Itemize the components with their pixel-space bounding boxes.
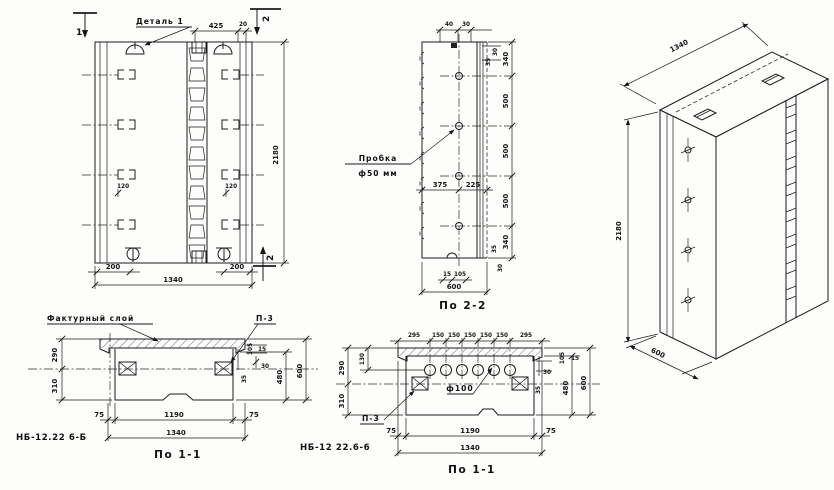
dim-150-a: 150	[432, 333, 444, 339]
hole-diameter-label: ф100	[446, 384, 473, 393]
dim-35-right: 35	[242, 375, 248, 383]
dim-30-right-2: 30	[543, 370, 551, 376]
dim-150-b: 150	[448, 333, 460, 339]
dim-chain-500b: 500	[502, 144, 510, 159]
dim-75-right: 75	[249, 411, 259, 419]
section-2-2-view: Пробка ф50 мм 40 30 30 35 375 225 340 50…	[345, 22, 516, 312]
dim-chain-500c: 500	[502, 194, 510, 209]
dim-75-left: 75	[94, 411, 104, 419]
dim-375: 375	[433, 181, 448, 189]
dim-1340-s11r: 1340	[460, 444, 480, 452]
dim-120-left: 120	[117, 184, 129, 190]
dim-30-side-top: 30	[493, 48, 499, 56]
engineering-drawing-sheet: 120 120 1 2 2 Деталь 1	[0, 0, 834, 490]
dim-310-left-2: 310	[338, 394, 346, 409]
anchor-loop-left-2	[412, 377, 428, 390]
dim-150-e: 150	[496, 333, 508, 339]
plug-label-line2: ф50 мм	[358, 169, 397, 178]
section-1-1-right-view: 295 150 150 150 150 150 295 290 310 130 …	[300, 333, 600, 476]
anchor-loop-right-2	[512, 377, 528, 390]
dim-105-right-2: 105	[560, 352, 566, 364]
dim-600-right: 600	[296, 364, 304, 379]
plug-label-line1: Пробка	[359, 154, 398, 163]
dim-15-s22: 15	[443, 272, 451, 278]
dim-1340-front: 1340	[163, 276, 183, 284]
dim-75-left-2: 75	[386, 427, 396, 435]
section-flag-2-top: 2	[250, 9, 281, 35]
dim-290-left-2: 290	[338, 361, 346, 376]
dim-chain-500a: 500	[502, 94, 510, 109]
dim-600-s22: 600	[447, 283, 462, 291]
section-1-1-left-view: Фактурный слой П-3 290 310 105 15 30 35 …	[16, 314, 318, 461]
dim-1190: 1190	[164, 411, 184, 419]
dim-30-right: 30	[261, 364, 269, 370]
section-mark-2b: 2	[266, 255, 276, 261]
dim-1340-s11l: 1340	[166, 429, 186, 437]
dim-1340-iso: 1340	[669, 38, 690, 54]
dim-35-side-bottom: 35	[492, 245, 498, 253]
section-flag-2-bottom: 2	[253, 246, 276, 281]
detail-1-label: Деталь 1	[136, 17, 184, 26]
dim-35-right-2: 35	[536, 386, 542, 394]
section-flag-1-top: 1	[73, 13, 97, 38]
section-title-2-2: По 2-2	[439, 300, 487, 312]
dim-200-right: 200	[230, 263, 245, 271]
dim-295-b: 295	[520, 333, 532, 339]
dim-480-right: 480	[276, 370, 284, 385]
dim-30-side-bottom: 30	[498, 264, 504, 272]
dim-chain-340a: 340	[502, 52, 510, 67]
hole-row	[425, 338, 516, 380]
dim-75-right-2: 75	[546, 427, 556, 435]
dim-2180-iso: 2180	[615, 221, 623, 241]
dim-150-d: 150	[480, 333, 492, 339]
dim-150-c: 150	[464, 333, 476, 339]
section-title-1-1-right: По 1-1	[448, 464, 496, 476]
dim-30-top: 30	[462, 22, 470, 28]
dim-425: 425	[209, 22, 224, 30]
anchor-loop-left	[119, 362, 136, 375]
dim-480-right-2: 480	[562, 381, 570, 396]
dim-1190-2: 1190	[460, 427, 480, 435]
front-view: 120 120 1 2 2 Деталь 1	[73, 9, 289, 289]
dim-200-left: 200	[106, 263, 121, 271]
dim-120-right: 120	[225, 184, 237, 190]
dim-225: 225	[466, 181, 481, 189]
dim-20: 20	[239, 22, 247, 28]
dim-105-right: 105	[248, 343, 254, 355]
dim-130: 130	[360, 353, 366, 365]
dim-chain-340b: 340	[502, 235, 510, 250]
section-mark-1: 1	[76, 28, 82, 38]
dim-2180-front: 2180	[272, 145, 280, 165]
dim-105-s22: 105	[454, 272, 466, 278]
isometric-view: 1340 2180 600	[615, 22, 828, 379]
dim-295-a: 295	[408, 333, 420, 339]
dim-600-right-2: 600	[580, 376, 588, 391]
section-mark-2: 2	[262, 16, 272, 22]
anchor-loop-right	[215, 362, 232, 375]
dim-290-left: 290	[51, 348, 59, 363]
dim-40: 40	[445, 22, 453, 28]
p3-label-left: П-3	[256, 314, 274, 323]
drawing-canvas: 120 120 1 2 2 Деталь 1	[0, 0, 834, 490]
dim-600-iso: 600	[650, 346, 667, 360]
dim-35-side-top: 35	[486, 58, 492, 66]
section-title-1-1-left: По 1-1	[154, 449, 202, 461]
p3-label-right: П-3	[362, 414, 380, 423]
facing-layer-label: Фактурный слой	[47, 314, 134, 323]
dim-310-left: 310	[51, 379, 59, 394]
part-mark-left: НБ-12.22 6-Б	[16, 433, 87, 443]
part-mark-right: НБ-12 22.6-6	[300, 443, 370, 453]
